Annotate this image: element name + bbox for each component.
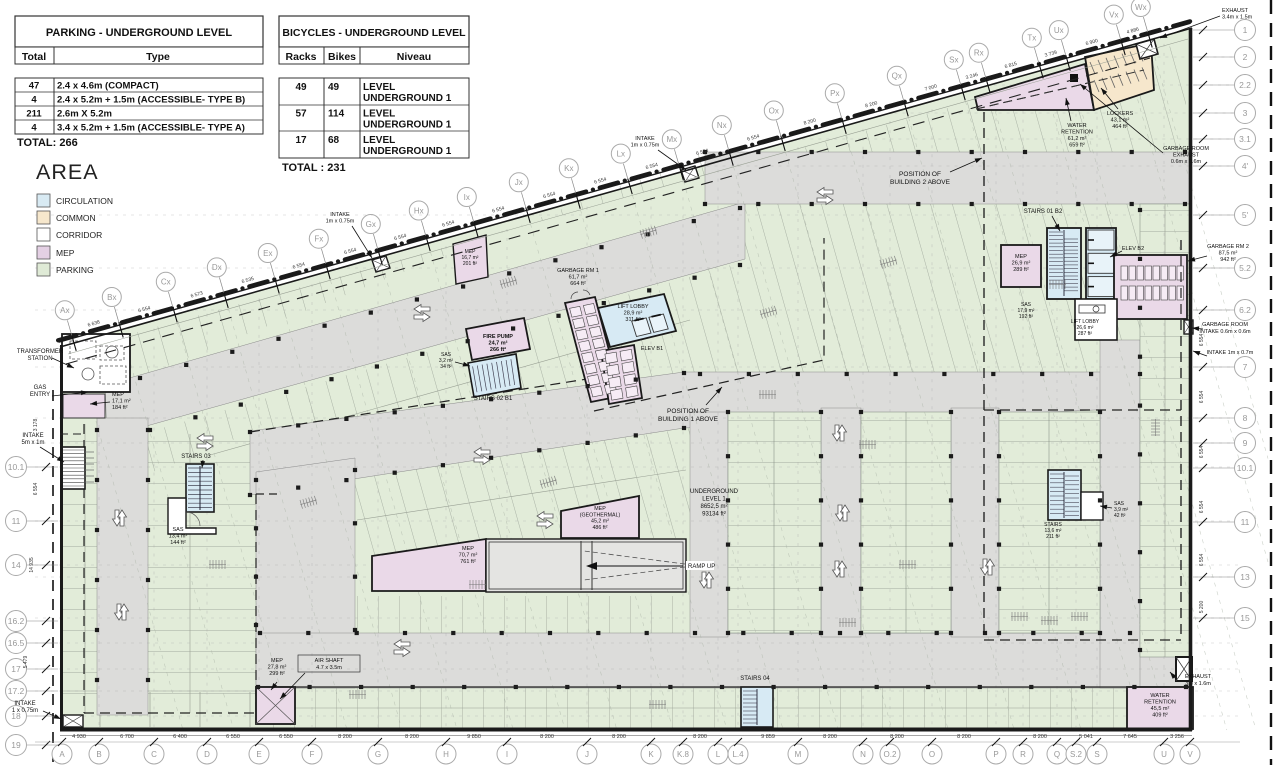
- svg-text:WATER: WATER: [1067, 123, 1086, 129]
- svg-text:S: S: [1094, 750, 1099, 759]
- svg-text:184 ft²: 184 ft²: [112, 405, 128, 411]
- svg-text:CORRIDOR: CORRIDOR: [56, 230, 102, 240]
- svg-text:Hx: Hx: [414, 206, 424, 215]
- svg-text:Jx: Jx: [515, 178, 523, 187]
- svg-text:STAIRS 03: STAIRS 03: [181, 454, 211, 460]
- svg-text:Ux: Ux: [1054, 26, 1064, 35]
- svg-text:LOCKERS: LOCKERS: [1107, 111, 1134, 117]
- svg-text:8 200: 8 200: [540, 734, 554, 740]
- svg-text:45,2 m²: 45,2 m²: [591, 519, 609, 525]
- svg-text:2.6m X 5.2m: 2.6m X 5.2m: [57, 109, 112, 120]
- svg-text:TOTAL: 266: TOTAL: 266: [17, 137, 78, 149]
- svg-text:P: P: [993, 750, 998, 759]
- svg-text:F: F: [310, 750, 315, 759]
- svg-text:LIFT LOBBY: LIFT LOBBY: [617, 304, 648, 310]
- svg-text:TRANSFORMER: TRANSFORMER: [17, 349, 64, 355]
- svg-text:Kx: Kx: [564, 164, 573, 173]
- svg-text:9 850: 9 850: [467, 734, 481, 740]
- svg-text:144 ft²: 144 ft²: [170, 540, 186, 546]
- svg-text:Bikes: Bikes: [328, 51, 356, 63]
- svg-text:2.2: 2.2: [1239, 80, 1251, 90]
- svg-text:57: 57: [295, 109, 307, 120]
- svg-text:4 930: 4 930: [72, 734, 86, 740]
- svg-text:70,7 m²: 70,7 m²: [459, 553, 478, 559]
- svg-text:5m x 1m: 5m x 1m: [21, 440, 44, 446]
- svg-text:2: 2: [1243, 52, 1248, 62]
- svg-text:6 550: 6 550: [279, 734, 293, 740]
- svg-text:17,1 m²: 17,1 m²: [112, 399, 131, 405]
- svg-text:Dx: Dx: [212, 263, 222, 272]
- svg-text:Type: Type: [146, 51, 170, 63]
- svg-text:8 200: 8 200: [823, 734, 837, 740]
- svg-text:U: U: [1161, 750, 1167, 759]
- svg-text:AIR SHAFT: AIR SHAFT: [315, 658, 344, 664]
- svg-text:L.4: L.4: [732, 750, 744, 759]
- svg-text:8 200: 8 200: [612, 734, 626, 740]
- svg-text:28,9 m²: 28,9 m²: [624, 311, 643, 317]
- svg-text:6 554: 6 554: [1199, 501, 1205, 514]
- svg-text:Vx: Vx: [1109, 10, 1118, 19]
- svg-text:6 554: 6 554: [1199, 391, 1205, 404]
- svg-text:8 200: 8 200: [1033, 734, 1047, 740]
- svg-text:409 ft²: 409 ft²: [1152, 713, 1168, 719]
- svg-text:13: 13: [1240, 572, 1250, 582]
- svg-text:6 400: 6 400: [173, 734, 187, 740]
- svg-text:LEVEL: LEVEL: [363, 82, 395, 93]
- svg-text:17: 17: [295, 135, 307, 146]
- svg-text:14: 14: [11, 560, 21, 570]
- svg-text:Rx: Rx: [974, 49, 984, 58]
- svg-text:9 859: 9 859: [761, 734, 775, 740]
- svg-text:9: 9: [1243, 438, 1248, 448]
- svg-text:10.1: 10.1: [1237, 463, 1254, 473]
- svg-text:Bx: Bx: [107, 293, 116, 302]
- svg-text:8 200: 8 200: [957, 734, 971, 740]
- svg-text:RETENTION: RETENTION: [1144, 700, 1176, 706]
- svg-text:GARBAGE ROOM: GARBAGE ROOM: [1163, 146, 1209, 152]
- svg-text:GARBAGE RM 1: GARBAGE RM 1: [557, 268, 599, 274]
- svg-text:Tx: Tx: [1027, 34, 1036, 43]
- svg-text:942 ft²: 942 ft²: [1220, 257, 1236, 263]
- svg-text:6 554: 6 554: [1199, 334, 1205, 347]
- svg-text:G: G: [375, 750, 381, 759]
- svg-text:Gx: Gx: [366, 220, 376, 229]
- svg-text:Nx: Nx: [717, 121, 727, 130]
- svg-text:16.2: 16.2: [8, 616, 25, 626]
- svg-text:289 ft²: 289 ft²: [1013, 267, 1029, 273]
- svg-text:3: 3: [1243, 108, 1248, 118]
- svg-text:4': 4': [1242, 161, 1249, 171]
- svg-text:19: 19: [11, 740, 21, 750]
- svg-text:UNDERGROUND: UNDERGROUND: [690, 489, 739, 495]
- svg-text:10.1: 10.1: [8, 462, 25, 472]
- svg-text:POSITION OF: POSITION OF: [899, 171, 941, 178]
- svg-text:8 200: 8 200: [405, 734, 419, 740]
- svg-text:MEP: MEP: [594, 506, 606, 512]
- svg-text:H: H: [443, 750, 449, 759]
- svg-text:UNDERGROUND 1: UNDERGROUND 1: [363, 93, 452, 104]
- svg-text:K.8: K.8: [677, 750, 690, 759]
- svg-text:GARBAGE ROOM: GARBAGE ROOM: [1202, 322, 1248, 328]
- svg-text:FIRE PUMP: FIRE PUMP: [483, 334, 513, 340]
- svg-text:192 ft²: 192 ft²: [1019, 314, 1034, 320]
- svg-text:WATER: WATER: [1150, 693, 1169, 699]
- svg-text:Wx: Wx: [1135, 3, 1147, 12]
- svg-text:M: M: [795, 750, 802, 759]
- svg-text:A: A: [59, 750, 65, 759]
- svg-text:13,4 m²: 13,4 m²: [169, 534, 188, 540]
- svg-text:61,2 m²: 61,2 m²: [1068, 136, 1087, 142]
- svg-text:5': 5': [1242, 210, 1249, 220]
- svg-text:Px: Px: [830, 89, 839, 98]
- svg-text:SAS: SAS: [172, 527, 183, 533]
- svg-text:Fx: Fx: [314, 235, 323, 244]
- svg-text:15: 15: [1240, 613, 1250, 623]
- svg-text:3 178: 3 178: [33, 419, 39, 432]
- svg-text:EXHAUST: EXHAUST: [1173, 153, 1200, 159]
- svg-text:MEP: MEP: [462, 546, 474, 552]
- svg-text:4.7 x 3.5m: 4.7 x 3.5m: [316, 665, 342, 671]
- svg-text:761 ft²: 761 ft²: [460, 559, 476, 565]
- svg-text:11: 11: [1241, 517, 1250, 527]
- svg-text:D: D: [204, 750, 210, 759]
- svg-text:Ax: Ax: [60, 306, 69, 315]
- svg-text:EXHAUST: EXHAUST: [1185, 674, 1212, 680]
- svg-text:Q: Q: [1054, 750, 1060, 759]
- svg-text:INTAKE: INTAKE: [635, 136, 655, 142]
- svg-text:K: K: [648, 750, 654, 759]
- svg-text:8 200: 8 200: [338, 734, 352, 740]
- svg-text:16.5: 16.5: [8, 638, 25, 648]
- svg-text:8 200: 8 200: [890, 734, 904, 740]
- svg-text:17: 17: [11, 664, 21, 674]
- svg-text:C: C: [151, 750, 157, 759]
- svg-text:45,5 m²: 45,5 m²: [1151, 706, 1170, 712]
- svg-text:6 554: 6 554: [1199, 446, 1205, 459]
- svg-text:5 200: 5 200: [1199, 601, 1205, 614]
- svg-text:GARBAGE RM 2: GARBAGE RM 2: [1207, 244, 1249, 250]
- svg-text:266 ft²: 266 ft²: [490, 346, 506, 353]
- svg-text:299 ft²: 299 ft²: [269, 671, 285, 677]
- svg-text:MEP: MEP: [112, 392, 124, 398]
- svg-text:3.4m x 1.5m: 3.4m x 1.5m: [1222, 15, 1253, 21]
- svg-text:6 554: 6 554: [33, 483, 39, 496]
- svg-text:93134 ft²: 93134 ft²: [702, 512, 726, 518]
- svg-text:PARKING - UNDERGROUND LEVEL: PARKING - UNDERGROUND LEVEL: [46, 27, 232, 39]
- svg-text:8652,5 m²: 8652,5 m²: [700, 504, 727, 510]
- svg-text:POSITION OF: POSITION OF: [667, 408, 709, 415]
- svg-text:7: 7: [1243, 362, 1248, 372]
- svg-text:42 ft²: 42 ft²: [1114, 513, 1126, 519]
- svg-text:6.2: 6.2: [1239, 305, 1251, 315]
- svg-text:49: 49: [328, 82, 340, 93]
- svg-text:I: I: [506, 750, 508, 759]
- svg-text:UNDERGROUND 1: UNDERGROUND 1: [363, 146, 452, 157]
- svg-text:68: 68: [328, 135, 340, 146]
- svg-text:STATION: STATION: [27, 356, 52, 362]
- svg-text:27,8 m²: 27,8 m²: [268, 665, 287, 671]
- svg-text:V: V: [1187, 750, 1193, 759]
- svg-text:LEVEL: LEVEL: [363, 135, 395, 146]
- svg-text:6 554: 6 554: [1199, 554, 1205, 567]
- svg-text:Niveau: Niveau: [397, 51, 431, 63]
- svg-text:BUILDING 2 ABOVE: BUILDING 2 ABOVE: [890, 179, 951, 186]
- svg-text:STAIRS 02 B1: STAIRS 02 B1: [474, 396, 513, 402]
- svg-text:ELEV B1: ELEV B1: [641, 346, 663, 352]
- svg-text:34 ft²: 34 ft²: [440, 364, 452, 370]
- svg-text:INTAKE 1m x 0.7m: INTAKE 1m x 0.7m: [1207, 350, 1254, 356]
- svg-text:Qx: Qx: [892, 72, 902, 81]
- svg-text:CIRCULATION: CIRCULATION: [56, 196, 113, 206]
- svg-text:8 200: 8 200: [693, 734, 707, 740]
- svg-text:211 ft²: 211 ft²: [1046, 534, 1060, 540]
- svg-text:311 ft²: 311 ft²: [625, 317, 640, 323]
- svg-text:E: E: [256, 750, 261, 759]
- svg-text:MEP: MEP: [1015, 254, 1027, 260]
- svg-text:INTAKE: INTAKE: [330, 212, 350, 218]
- svg-text:MEP: MEP: [271, 658, 283, 664]
- svg-text:8: 8: [1243, 413, 1248, 423]
- svg-text:Ix: Ix: [464, 193, 470, 202]
- svg-text:3.0 x 1.6m: 3.0 x 1.6m: [1185, 681, 1211, 687]
- svg-text:3 256: 3 256: [1170, 734, 1184, 740]
- svg-text:61,7 m²: 61,7 m²: [569, 275, 588, 281]
- svg-text:O.2: O.2: [884, 750, 897, 759]
- svg-text:O: O: [929, 750, 935, 759]
- svg-text:Ox: Ox: [769, 106, 779, 115]
- svg-text:INTAKE: INTAKE: [14, 701, 35, 707]
- svg-text:14 935: 14 935: [29, 557, 35, 573]
- svg-text:EXHAUST: EXHAUST: [1222, 8, 1249, 14]
- svg-text:Lx: Lx: [617, 149, 625, 158]
- svg-text:7 645: 7 645: [1123, 734, 1137, 740]
- svg-text:TOTAL : 231: TOTAL : 231: [282, 162, 346, 174]
- svg-text:11: 11: [12, 516, 21, 526]
- svg-text:Ex: Ex: [263, 249, 272, 258]
- svg-text:STAIRS 04: STAIRS 04: [740, 676, 770, 682]
- svg-text:201 ft²: 201 ft²: [463, 261, 478, 267]
- svg-text:114: 114: [328, 109, 345, 120]
- svg-text:ENTRY: ENTRY: [30, 392, 50, 398]
- svg-text:659 ft²: 659 ft²: [1069, 143, 1085, 149]
- svg-text:49: 49: [295, 82, 307, 93]
- svg-text:MEP: MEP: [56, 248, 75, 258]
- svg-text:RAMP UP: RAMP UP: [688, 564, 715, 570]
- svg-text:S.2: S.2: [1070, 750, 1083, 759]
- svg-text:AREA: AREA: [36, 160, 99, 184]
- svg-text:664 ft²: 664 ft²: [570, 281, 586, 287]
- svg-text:(GEOTHERMAL): (GEOTHERMAL): [580, 512, 621, 518]
- svg-text:N: N: [860, 750, 866, 759]
- svg-text:6 700: 6 700: [120, 734, 134, 740]
- svg-text:1: 1: [1243, 25, 1248, 35]
- svg-text:L: L: [716, 750, 721, 759]
- svg-text:Racks: Racks: [286, 51, 317, 63]
- svg-text:Sx: Sx: [949, 56, 958, 65]
- svg-text:Cx: Cx: [161, 278, 171, 287]
- svg-text:INTAKE 0.6m x 0.6m: INTAKE 0.6m x 0.6m: [1199, 329, 1251, 335]
- svg-text:4: 4: [31, 123, 37, 134]
- svg-text:5 479: 5 479: [23, 656, 29, 669]
- svg-text:1m x 0.75m: 1m x 0.75m: [326, 219, 355, 225]
- svg-text:BICYCLES - UNDERGROUND LEVEL: BICYCLES - UNDERGROUND LEVEL: [282, 27, 466, 39]
- svg-text:4: 4: [31, 95, 37, 106]
- svg-text:287 ft²: 287 ft²: [1078, 331, 1093, 337]
- svg-text:B: B: [96, 750, 101, 759]
- svg-text:2.4 x 5.2m + 1.5m (ACCESSIBLE-: 2.4 x 5.2m + 1.5m (ACCESSIBLE- TYPE B): [57, 95, 245, 106]
- svg-text:LEVEL 1: LEVEL 1: [702, 497, 726, 503]
- svg-text:24,7 m²: 24,7 m²: [489, 340, 508, 347]
- svg-text:486 ft²: 486 ft²: [592, 525, 607, 531]
- svg-text:J: J: [585, 750, 589, 759]
- svg-text:R: R: [1020, 750, 1026, 759]
- svg-text:UNDERGROUND 1: UNDERGROUND 1: [363, 120, 452, 131]
- svg-text:COMMON: COMMON: [56, 213, 96, 223]
- svg-text:211: 211: [26, 109, 42, 120]
- svg-text:1 x 0.75m: 1 x 0.75m: [12, 708, 38, 714]
- svg-text:3.4 x 5.2m + 1.5m (ACCESSIBLE-: 3.4 x 5.2m + 1.5m (ACCESSIBLE- TYPE A): [57, 123, 245, 134]
- svg-text:5 041: 5 041: [1079, 734, 1093, 740]
- svg-text:Total: Total: [22, 51, 46, 63]
- svg-text:PARKING: PARKING: [56, 265, 94, 275]
- svg-text:STAIRS 01 B2: STAIRS 01 B2: [1024, 209, 1063, 215]
- svg-text:47: 47: [29, 81, 40, 92]
- svg-text:Mx: Mx: [666, 135, 677, 144]
- svg-text:5.2: 5.2: [1239, 263, 1251, 273]
- svg-text:ELEV B2: ELEV B2: [1122, 246, 1144, 252]
- svg-text:RETENTION: RETENTION: [1061, 130, 1093, 136]
- svg-text:1m x 0.75m: 1m x 0.75m: [631, 143, 660, 149]
- svg-text:26,9 m²: 26,9 m²: [1012, 261, 1031, 267]
- svg-text:3.1: 3.1: [1239, 134, 1251, 144]
- svg-text:17.2: 17.2: [8, 686, 25, 696]
- svg-text:0.6m x 0.6m: 0.6m x 0.6m: [1171, 159, 1202, 165]
- svg-text:INTAKE: INTAKE: [22, 433, 43, 439]
- svg-text:LEVEL: LEVEL: [363, 109, 395, 120]
- svg-text:GAS: GAS: [34, 385, 47, 391]
- svg-text:BUILDING 1 ABOVE: BUILDING 1 ABOVE: [658, 416, 719, 423]
- svg-text:87,5 m²: 87,5 m²: [1219, 251, 1238, 257]
- svg-text:464 ft²: 464 ft²: [1112, 124, 1128, 130]
- svg-text:2.4 x 4.6m (COMPACT): 2.4 x 4.6m (COMPACT): [57, 81, 159, 92]
- svg-text:6 550: 6 550: [226, 734, 240, 740]
